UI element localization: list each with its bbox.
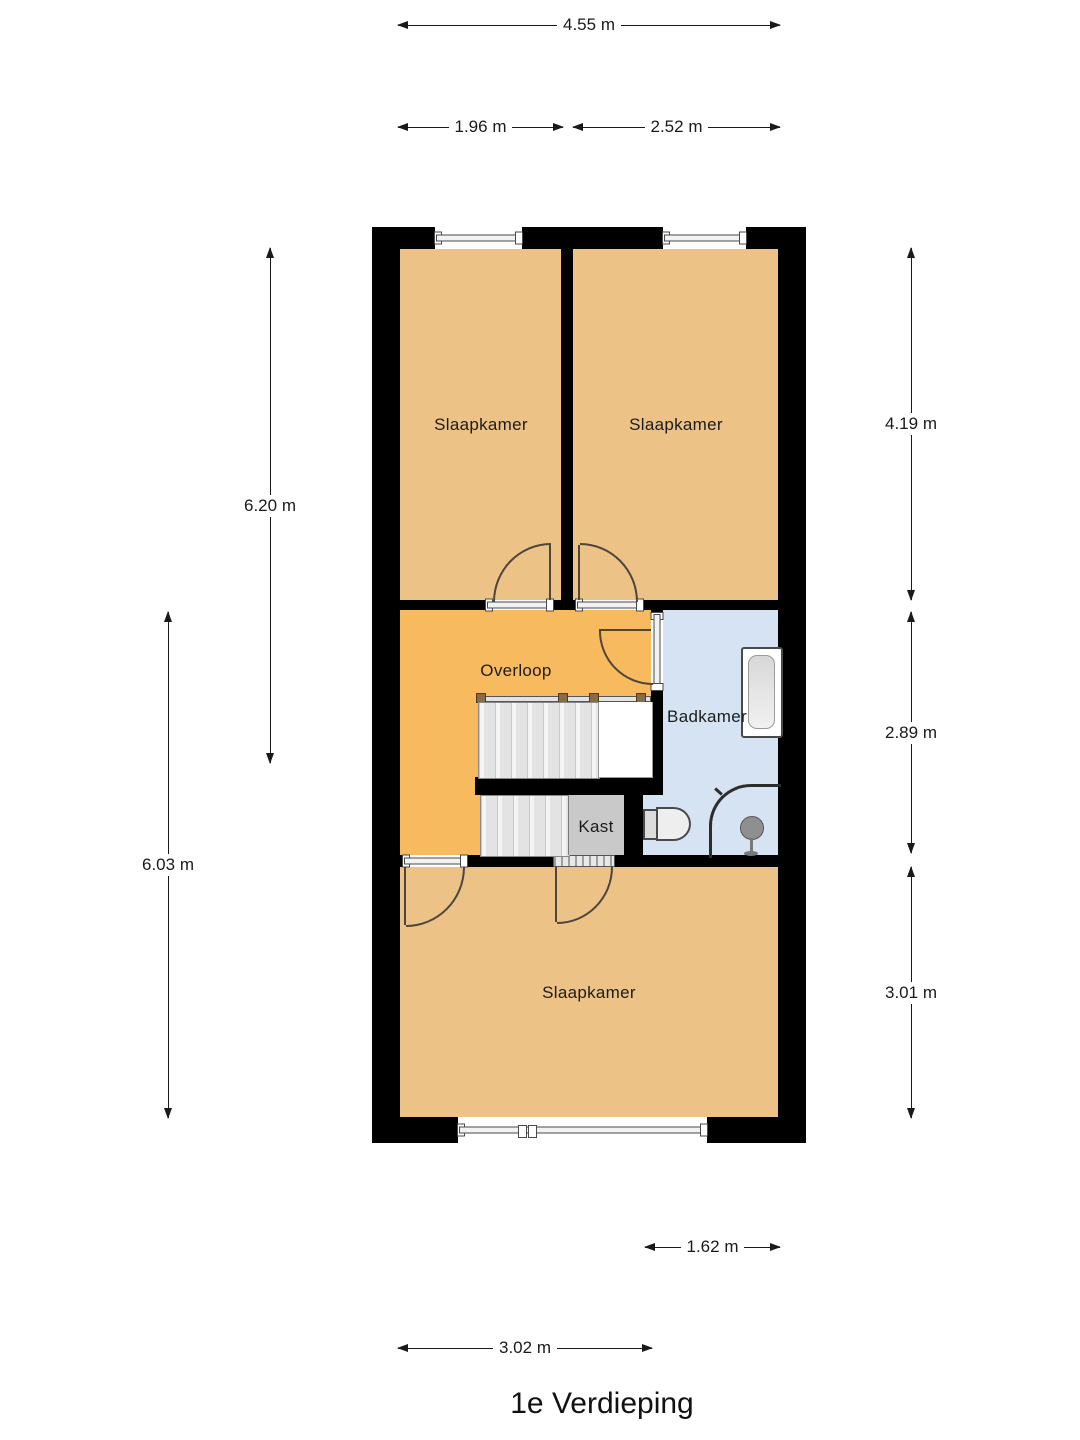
dimension-label: 6.20 m — [238, 495, 302, 517]
dimension-label: 1.96 m — [449, 116, 513, 138]
dim-arrow — [907, 611, 915, 622]
dim-arrow — [397, 21, 408, 29]
window-top-left — [435, 227, 522, 249]
dim-arrow — [266, 753, 274, 764]
room-label-slaapkamer-bottom: Slaapkamer — [542, 983, 636, 1003]
kast-badkamer-wall — [623, 795, 643, 855]
floor-title: 1e Verdieping — [510, 1387, 694, 1421]
dim-arrow — [770, 1243, 781, 1251]
threshold-line — [577, 602, 642, 609]
dim-arrow — [397, 123, 408, 131]
dim-arrow — [907, 590, 915, 601]
dim-arrow — [644, 1243, 655, 1251]
dimension-label: 3.02 m — [493, 1337, 557, 1359]
dimension-label: 1.62 m — [681, 1236, 745, 1258]
toilet-bowl — [656, 807, 691, 841]
room-label-slaapkamer-top-left: Slaapkamer — [434, 415, 528, 435]
dim-arrow — [266, 247, 274, 258]
stair-landing-wall — [475, 777, 651, 795]
window-mullion — [518, 1125, 527, 1138]
dim-arrow — [907, 866, 915, 877]
dim-arrow — [553, 123, 564, 131]
dimension-label: 2.89 m — [879, 722, 943, 744]
threshold-line — [404, 858, 466, 865]
dim-arrow — [164, 611, 172, 622]
staircase-void — [598, 702, 653, 778]
dimension-label: 3.01 m — [879, 982, 943, 1004]
dim-arrow — [770, 21, 781, 29]
dim-arrow — [907, 1108, 915, 1119]
shower-base — [744, 851, 758, 856]
window-bottom — [458, 1117, 707, 1143]
window-glazing — [459, 1127, 706, 1134]
bathtub-basin — [748, 655, 775, 729]
doorway-slaapkamer-bottom — [403, 855, 467, 867]
room-label-overloop: Overloop — [480, 661, 551, 681]
floor-plan-canvas: Slaapkamer Slaapkamer Overloop Badkamer … — [0, 0, 1080, 1440]
window-glazing — [436, 235, 521, 242]
threshold-line — [487, 602, 552, 609]
window-glazing — [664, 235, 745, 242]
room-label-kast: Kast — [578, 817, 613, 837]
shower-head — [740, 816, 764, 840]
dim-arrow — [572, 123, 583, 131]
window-top-right — [663, 227, 746, 249]
dim-arrow — [164, 1108, 172, 1119]
dim-arrow — [907, 247, 915, 258]
dimension-label: 4.55 m — [557, 14, 621, 36]
staircase-upper-flight — [478, 702, 600, 779]
room-label-slaapkamer-top-right: Slaapkamer — [629, 415, 723, 435]
dim-arrow — [770, 123, 781, 131]
dim-arrow — [397, 1344, 408, 1352]
dimension-label: 6.03 m — [136, 854, 200, 876]
dim-arrow — [642, 1344, 653, 1352]
window-mullion — [528, 1125, 537, 1138]
dimension-label: 4.19 m — [879, 413, 943, 435]
dim-arrow — [907, 843, 915, 854]
staircase-lower-flight — [480, 795, 570, 857]
threshold-line — [654, 614, 661, 689]
room-label-badkamer: Badkamer — [667, 707, 747, 727]
dimension-label: 2.52 m — [645, 116, 709, 138]
